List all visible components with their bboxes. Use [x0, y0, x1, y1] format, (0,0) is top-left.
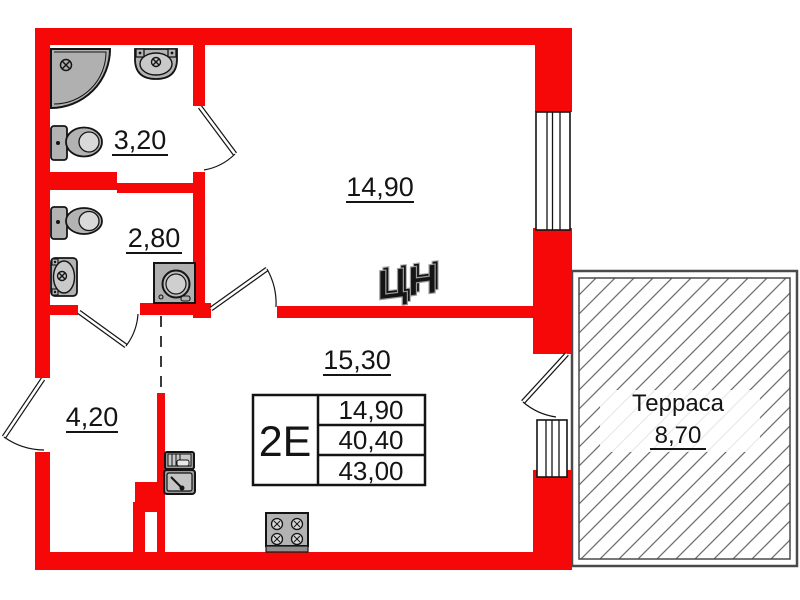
- kitchen-sink-icon: [164, 452, 195, 494]
- wall-room-divider-stub: [193, 306, 211, 318]
- total-area-value: 43,00: [338, 456, 403, 486]
- wall-bottom: [35, 552, 572, 570]
- wall-kitchen-pier-a: [135, 482, 157, 502]
- window-kitchen: [537, 420, 567, 477]
- wall-bath-wc-divider-right: [117, 183, 205, 193]
- apartment-area-value: 40,40: [338, 425, 403, 455]
- sink-icon: [51, 258, 77, 296]
- walls: [35, 28, 572, 570]
- door-leaf-inner: [4, 379, 43, 437]
- door-leaf-inner: [79, 312, 126, 346]
- watermark-logo: ЦН ЦН: [377, 251, 441, 309]
- wall-kitchen-pier-c: [133, 512, 145, 555]
- door-wc: [79, 312, 138, 346]
- wall-room-divider: [277, 306, 535, 318]
- wc-area-label: 2,80: [128, 223, 181, 253]
- sink-icon: [135, 49, 177, 79]
- wall-left-upper: [35, 28, 50, 378]
- door-terrace: [523, 354, 567, 417]
- wall-right-pillar-top: [535, 28, 572, 112]
- apartment-info-table: 2Е 14,90 40,40 43,00: [253, 395, 425, 486]
- door-swing-icon: [4, 437, 44, 450]
- wall-right-pillar-bottom: [533, 470, 572, 570]
- terrace-area-label: 8,70: [655, 422, 702, 449]
- door-leaf-inner: [200, 107, 235, 154]
- hallway-area-label: 4,20: [66, 402, 119, 432]
- door-entrance: [4, 379, 44, 450]
- room-labels: 3,20 2,80 14,90 15,30 4,20: [66, 125, 414, 432]
- wall-bath-wc-divider-left: [36, 172, 117, 190]
- wall-right-pillar-mid: [533, 228, 572, 354]
- stove-icon: [266, 513, 308, 552]
- floor-plan-page: Терраса 8,70: [0, 0, 800, 600]
- bathroom-area-label: 3,20: [114, 125, 167, 155]
- kitchen-living-area-label: 15,30: [323, 345, 391, 375]
- door-swing-icon: [267, 269, 276, 307]
- wall-top: [35, 28, 572, 45]
- bedroom-area-label: 14,90: [346, 172, 414, 202]
- shower-icon: [51, 49, 110, 108]
- floor-plan: Терраса 8,70: [0, 0, 800, 600]
- watermark-front: ЦН: [377, 255, 438, 309]
- terrace: Терраса 8,70: [572, 271, 797, 566]
- wall-bathroom-right-upper: [193, 28, 205, 106]
- wall-kitchen-pier-b: [133, 502, 157, 512]
- door-bathroom: [200, 107, 235, 170]
- wall-wc-bottom-stub: [50, 305, 78, 315]
- apartment-type-label: 2Е: [259, 418, 312, 466]
- door-bedroom: [211, 269, 276, 309]
- terrace-name-label: Терраса: [632, 390, 725, 417]
- window-bedroom: [536, 112, 570, 230]
- door-swing-icon: [523, 402, 556, 417]
- living-area-value: 14,90: [338, 395, 403, 425]
- door-leaf-inner: [211, 269, 267, 309]
- toilet-icon: [51, 207, 102, 239]
- door-leaf-inner: [523, 354, 567, 402]
- washing-machine-icon: [154, 263, 195, 303]
- toilet-icon: [51, 126, 102, 160]
- door-swing-icon: [204, 154, 235, 170]
- door-swing-icon: [126, 314, 138, 346]
